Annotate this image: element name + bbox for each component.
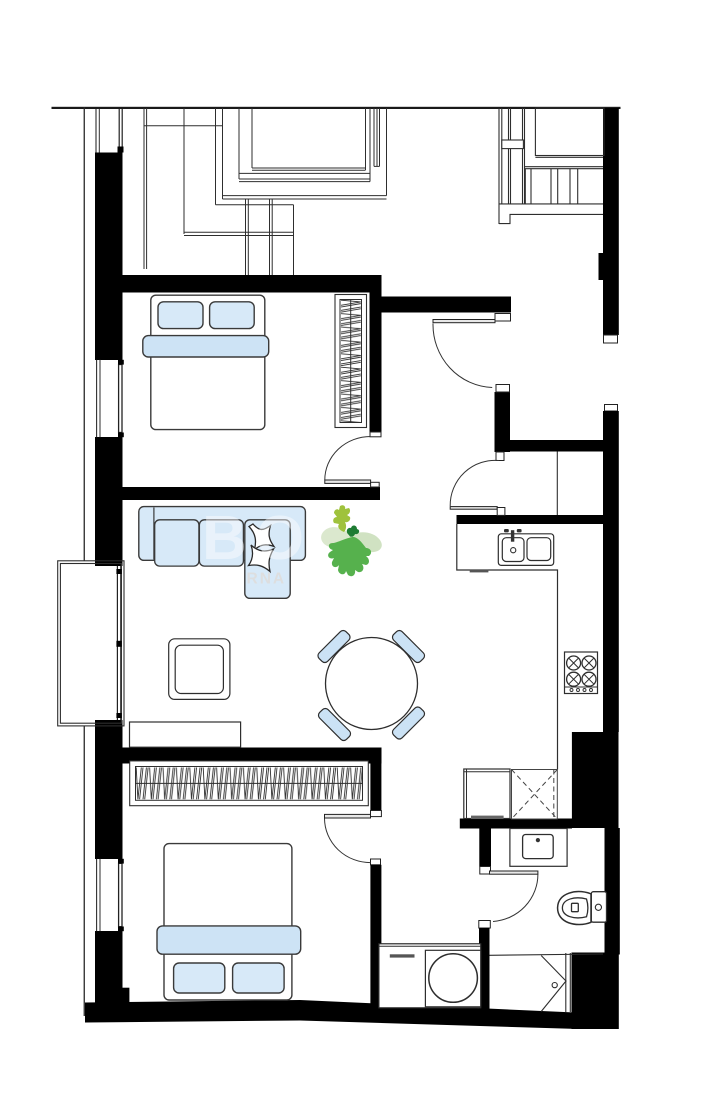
svg-text:BO: BO	[202, 504, 313, 573]
svg-text:RNA: RNA	[247, 571, 287, 588]
